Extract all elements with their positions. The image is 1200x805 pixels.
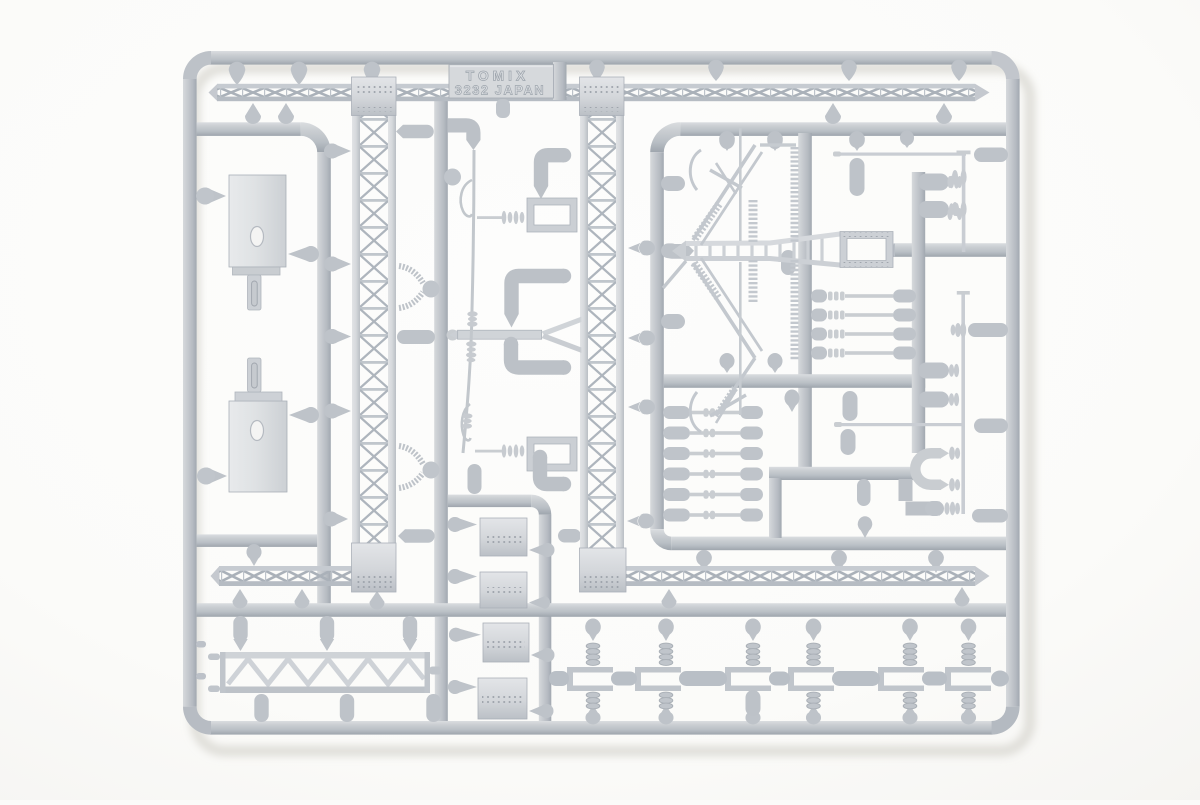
svg-text:TOMIX: TOMIX: [466, 69, 529, 84]
svg-text:3232 JAPAN: 3232 JAPAN: [455, 83, 545, 98]
